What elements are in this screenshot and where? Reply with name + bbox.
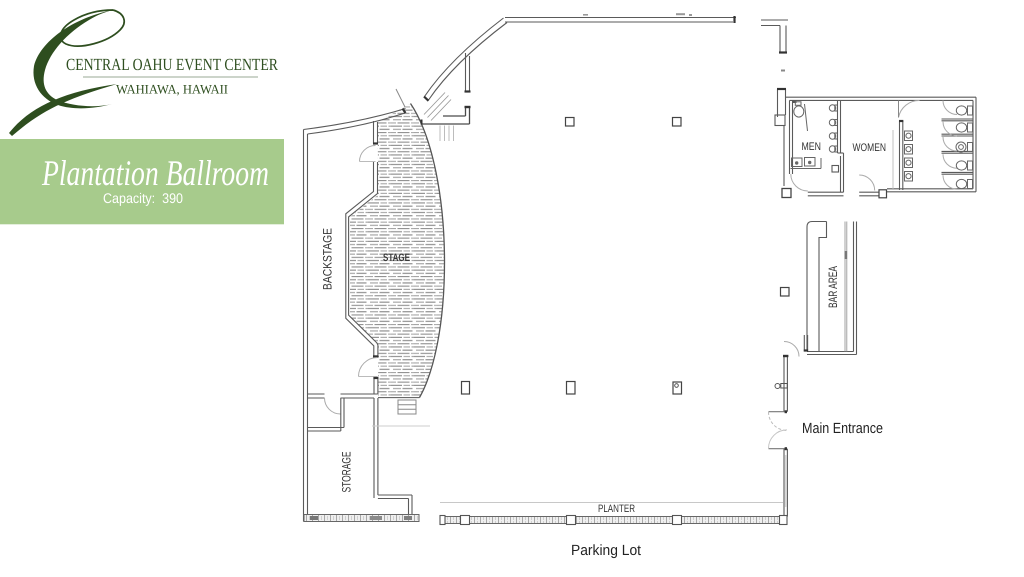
- svg-text:BACKSTAGE: BACKSTAGE: [321, 228, 335, 290]
- svg-text:CENTRAL OAHU EVENT CENTER: CENTRAL OAHU EVENT CENTER: [66, 55, 279, 74]
- svg-text:WAHIAWA, HAWAII: WAHIAWA, HAWAII: [116, 82, 228, 97]
- svg-text:Parking Lot: Parking Lot: [571, 543, 641, 559]
- svg-text:Main Entrance: Main Entrance: [802, 421, 883, 437]
- svg-text:MEN: MEN: [802, 141, 822, 153]
- svg-text:STORAGE: STORAGE: [340, 452, 354, 493]
- svg-text:WOMEN: WOMEN: [853, 142, 887, 154]
- svg-text:Capacity: 390: Capacity: 390: [103, 190, 183, 206]
- svg-text:PLANTER: PLANTER: [598, 503, 635, 515]
- svg-text:STAGE: STAGE: [383, 252, 410, 264]
- svg-text:BAR AREA: BAR AREA: [826, 265, 840, 308]
- svg-text:Plantation Ballroom: Plantation Ballroom: [41, 153, 269, 193]
